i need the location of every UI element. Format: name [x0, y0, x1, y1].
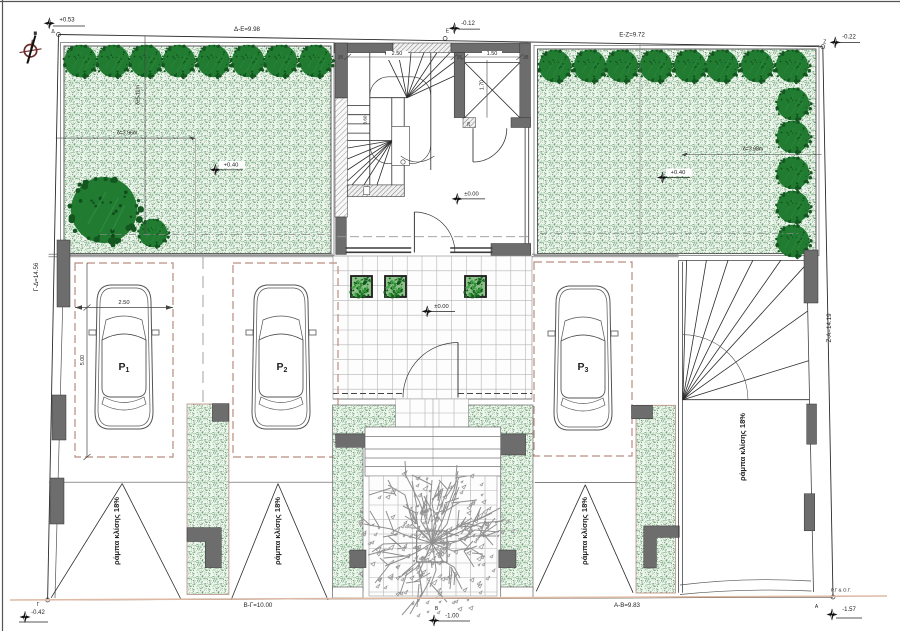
svg-text:δ=3.96m: δ=3.96m [117, 131, 137, 137]
svg-text:-1.57: -1.57 [842, 607, 856, 613]
svg-text:δ=3.98m: δ=3.98m [743, 147, 763, 153]
svg-text:-0.22: -0.22 [842, 35, 856, 41]
svg-text:Β: Β [435, 606, 439, 612]
svg-text:+0.53: +0.53 [59, 18, 75, 24]
svg-text:+0.40: +0.40 [671, 170, 686, 176]
svg-text:Γ: Γ [37, 602, 40, 608]
svg-text:1.70: 1.70 [480, 80, 486, 90]
svg-text:Ε-Ζ=9.72: Ε-Ζ=9.72 [619, 32, 645, 39]
svg-text:-0.42: -0.42 [31, 610, 45, 616]
svg-text:ράμπα κλίσης 18%: ράμπα κλίσης 18% [580, 497, 589, 565]
svg-text:±0.00: ±0.00 [434, 304, 448, 310]
svg-text:3.60: 3.60 [362, 115, 367, 124]
svg-text:Ζ-Α=14.19: Ζ-Α=14.19 [826, 313, 833, 343]
svg-text:2.50: 2.50 [118, 300, 129, 306]
svg-text:Ζ: Ζ [823, 40, 826, 46]
svg-text:Α: Α [815, 604, 819, 610]
svg-text:ράμπα κλίσης 18%: ράμπα κλίσης 18% [273, 497, 282, 565]
svg-text:Β-Γ=10.00: Β-Γ=10.00 [244, 602, 273, 609]
svg-text:5.00: 5.00 [80, 355, 86, 365]
svg-text:1.50: 1.50 [487, 51, 498, 57]
svg-text:-1.00: -1.00 [445, 614, 459, 620]
svg-text:δ±5.11m: δ±5.11m [136, 85, 142, 105]
svg-text:2.50: 2.50 [392, 51, 403, 57]
svg-text:Δ-Ε=9.98: Δ-Ε=9.98 [234, 26, 261, 33]
svg-text:25: 25 [466, 121, 471, 126]
svg-text:-0.12: -0.12 [461, 21, 475, 27]
svg-text:25: 25 [524, 55, 529, 60]
svg-text:+0.40: +0.40 [224, 163, 239, 169]
svg-text:Δ: Δ [51, 29, 55, 35]
svg-text:ράμπα κλίσης 18%: ράμπα κλίσης 18% [738, 413, 747, 481]
svg-text:Γ-Δ=14.56: Γ-Δ=14.56 [33, 262, 40, 291]
svg-text:ράμπα κλίσης 18%: ράμπα κλίσης 18% [112, 497, 121, 565]
svg-text:25: 25 [457, 55, 462, 60]
svg-text:±0.00: ±0.00 [464, 192, 478, 198]
svg-text:25: 25 [338, 55, 343, 60]
svg-text:Ε: Ε [446, 29, 450, 35]
svg-text:Ρ.Γ & Ο.Γ.: Ρ.Γ & Ο.Γ. [831, 588, 851, 593]
svg-text:Α-Β=9.83: Α-Β=9.83 [614, 602, 641, 609]
